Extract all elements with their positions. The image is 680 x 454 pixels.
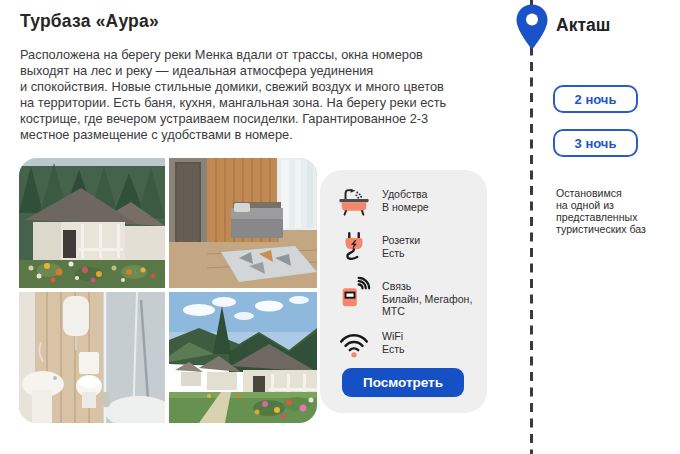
amenity-item: Связь Билайн, Мегафон, МТС [337, 276, 480, 318]
power-plug-icon [337, 230, 371, 264]
amenity-item: WiFi Есть [337, 326, 480, 360]
amenity-title: WiFi [382, 330, 480, 343]
description-line: выходят на лес и реку — идеальная атмосф… [20, 63, 446, 79]
photo-cabins-exterior [19, 158, 165, 288]
amenity-item: Удобства В номере [337, 184, 480, 218]
amenity-title: Удобства [382, 188, 480, 201]
amenities-panel: Удобства В номере Розетки Есть [320, 170, 487, 413]
amenity-value: Есть [382, 247, 480, 260]
amenity-value: В номере [382, 201, 480, 214]
description-line: на территории. Есть баня, кухня, мангаль… [20, 95, 446, 111]
photo-grid [19, 158, 317, 423]
tour-card: Турбаза «Аура» Расположена на берегу рек… [0, 0, 680, 454]
amenity-title: Розетки [382, 234, 480, 247]
description-line: и спокойствия. Новые стильные домики, св… [20, 79, 446, 95]
amenity-title: Связь [382, 280, 480, 293]
amenity-value: Билайн, Мегафон, МТС [382, 293, 480, 318]
location-pin-icon [515, 3, 549, 51]
route-dashed-line [529, 0, 534, 454]
amenity-item: Розетки Есть [337, 230, 480, 264]
page-title: Турбаза «Аура» [20, 11, 159, 32]
amenity-value: Есть [382, 343, 480, 356]
location-label: Акташ [556, 15, 610, 36]
photo-bedroom-interior [169, 158, 317, 288]
description-line: Расположена на берегу реки Менка вдали о… [20, 47, 446, 63]
mobile-signal-icon [337, 276, 371, 310]
description-line: местное размещение с удобствами в номере… [20, 127, 446, 143]
photo-bathroom [19, 292, 165, 423]
shower-bath-icon [337, 184, 371, 218]
nights-option-button-2[interactable]: 2 ночь [553, 85, 638, 113]
wifi-icon [337, 326, 371, 360]
route-note: Остановимся на одной из представленных т… [556, 187, 646, 235]
description: Расположена на берегу реки Менка вдали о… [20, 47, 446, 143]
photo-cabins-row [169, 292, 317, 423]
description-line: кострище, где вечером устраиваем посидел… [20, 111, 446, 127]
view-button[interactable]: Посмотреть [342, 368, 464, 397]
nights-option-button-3[interactable]: 3 ночь [553, 129, 638, 157]
